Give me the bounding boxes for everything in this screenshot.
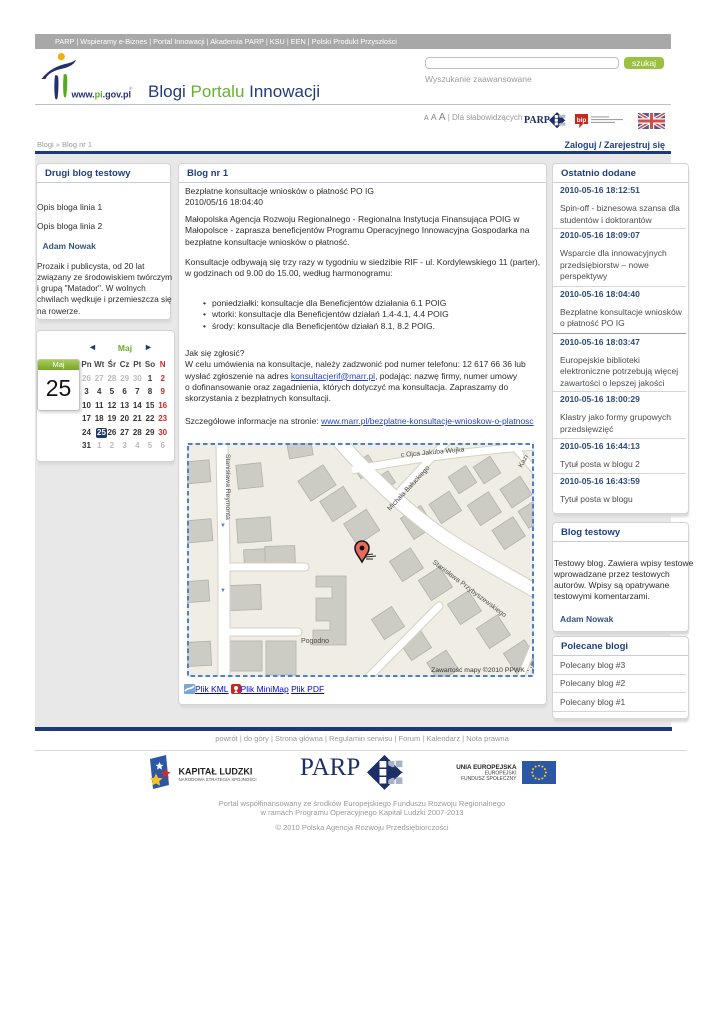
svg-text:KAPITAŁ LUDZKI: KAPITAŁ LUDZKI [179,767,253,777]
svg-text:bip: bip [577,117,587,124]
svg-text:®: ® [129,85,133,91]
svg-text:Zawartość mapy ©2010 PPWK -: Zawartość mapy ©2010 PPWK - [431,666,529,674]
svg-text:▼: ▼ [220,523,226,529]
svg-text:▼: ▼ [220,588,226,594]
svg-text:www.pi.gov.pl: www.pi.gov.pl [71,90,132,100]
svg-text:PARP: PARP [300,754,360,781]
svg-text:FUNDUSZ SPOŁECZNY: FUNDUSZ SPOŁECZNY [461,776,517,782]
svg-text:NARODOWA STRATEGIA SPÓJNOŚCI: NARODOWA STRATEGIA SPÓJNOŚCI [179,777,257,782]
svg-text:Pogodno: Pogodno [301,638,329,645]
svg-text:Stanisława Reymonta: Stanisława Reymonta [224,454,231,520]
